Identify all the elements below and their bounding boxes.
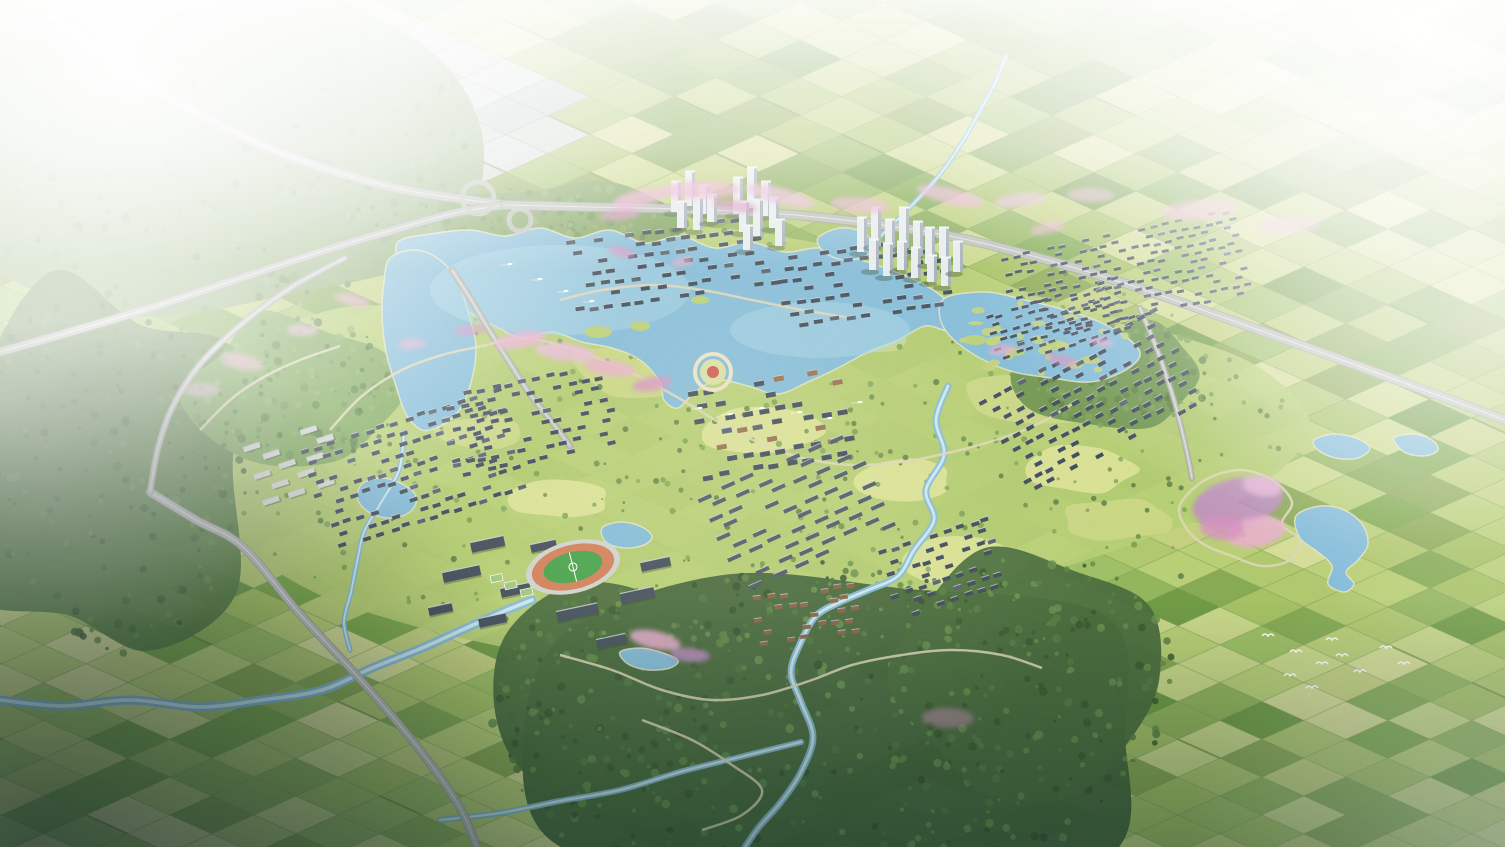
aerial-masterplan-render [0, 0, 1505, 847]
haze-layer [0, 0, 1505, 847]
scene-canvas [0, 0, 1505, 847]
mist-southeast [0, 0, 1505, 847]
